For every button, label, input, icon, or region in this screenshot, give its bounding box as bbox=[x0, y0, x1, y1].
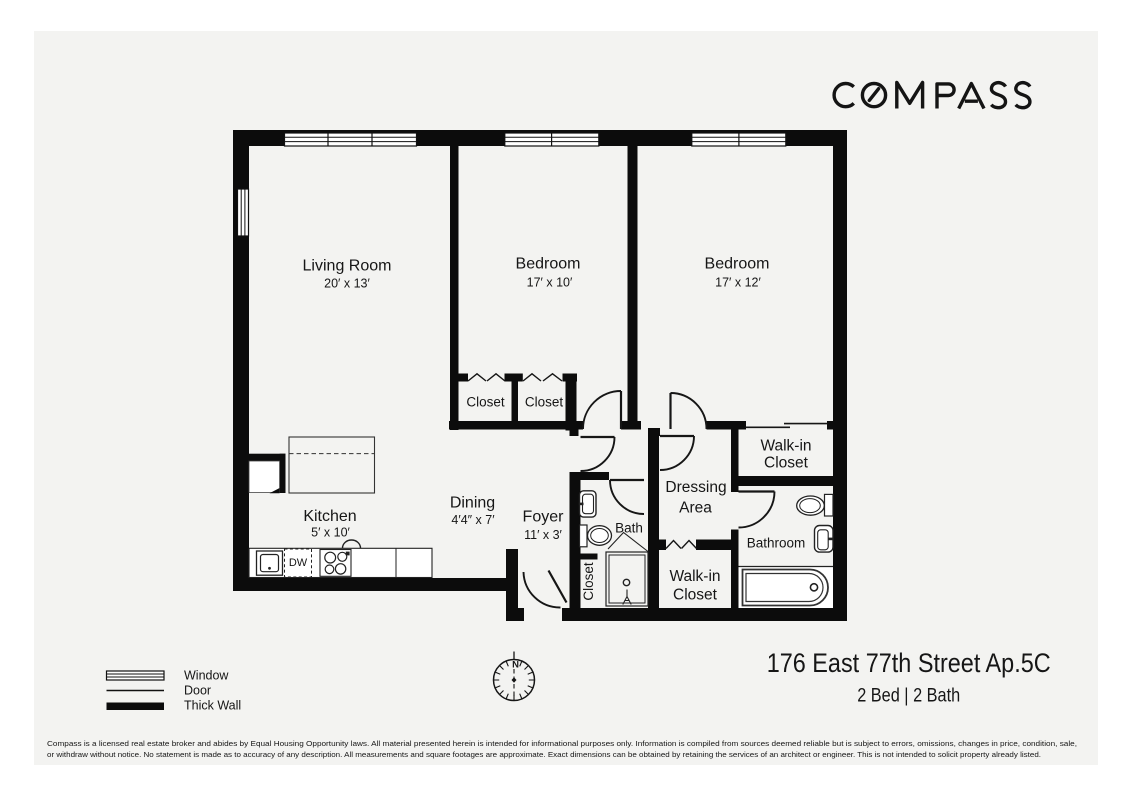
svg-text:11′ x 3′: 11′ x 3′ bbox=[524, 528, 562, 542]
svg-text:20′ x 13′: 20′ x 13′ bbox=[324, 277, 370, 291]
svg-text:Living Room: Living Room bbox=[303, 258, 392, 275]
svg-text:Walk-in: Walk-in bbox=[760, 438, 811, 455]
svg-text:Area: Area bbox=[679, 500, 712, 517]
svg-text:Closet: Closet bbox=[764, 455, 809, 472]
svg-text:Kitchen: Kitchen bbox=[303, 508, 356, 525]
svg-text:or withdraw without notice. No: or withdraw without notice. No statement… bbox=[47, 750, 1041, 759]
svg-text:Dining: Dining bbox=[450, 495, 495, 512]
svg-text:Closet: Closet bbox=[466, 395, 505, 410]
svg-text:N: N bbox=[512, 660, 519, 671]
svg-text:4′4″ x 7′: 4′4″ x 7′ bbox=[451, 513, 495, 527]
svg-text:176 East 77th Street Ap.5C: 176 East 77th Street Ap.5C bbox=[767, 648, 1051, 678]
svg-text:2 Bed | 2 Bath: 2 Bed | 2 Bath bbox=[857, 686, 960, 707]
svg-text:5′ x 10′: 5′ x 10′ bbox=[311, 526, 350, 540]
svg-text:Closet: Closet bbox=[673, 587, 718, 604]
svg-text:Door: Door bbox=[184, 684, 211, 698]
svg-text:Bath: Bath bbox=[615, 521, 643, 536]
svg-text:Closet: Closet bbox=[525, 395, 564, 410]
svg-text:Dressing: Dressing bbox=[665, 479, 726, 496]
svg-text:Bedroom: Bedroom bbox=[705, 256, 770, 273]
svg-text:DW: DW bbox=[289, 557, 308, 569]
svg-text:Thick Wall: Thick Wall bbox=[184, 699, 241, 713]
svg-text:17′ x 10′: 17′ x 10′ bbox=[527, 276, 573, 290]
svg-text:Bathroom: Bathroom bbox=[747, 535, 806, 550]
svg-text:Window: Window bbox=[184, 669, 229, 683]
svg-text:Closet: Closet bbox=[581, 562, 596, 601]
svg-text:Foyer: Foyer bbox=[523, 509, 565, 526]
svg-text:17′ x 12′: 17′ x 12′ bbox=[715, 276, 761, 290]
svg-text:Walk-in: Walk-in bbox=[669, 568, 720, 585]
svg-text:Compass is a licensed real est: Compass is a licensed real estate broker… bbox=[47, 739, 1077, 748]
svg-text:Bedroom: Bedroom bbox=[516, 256, 581, 273]
